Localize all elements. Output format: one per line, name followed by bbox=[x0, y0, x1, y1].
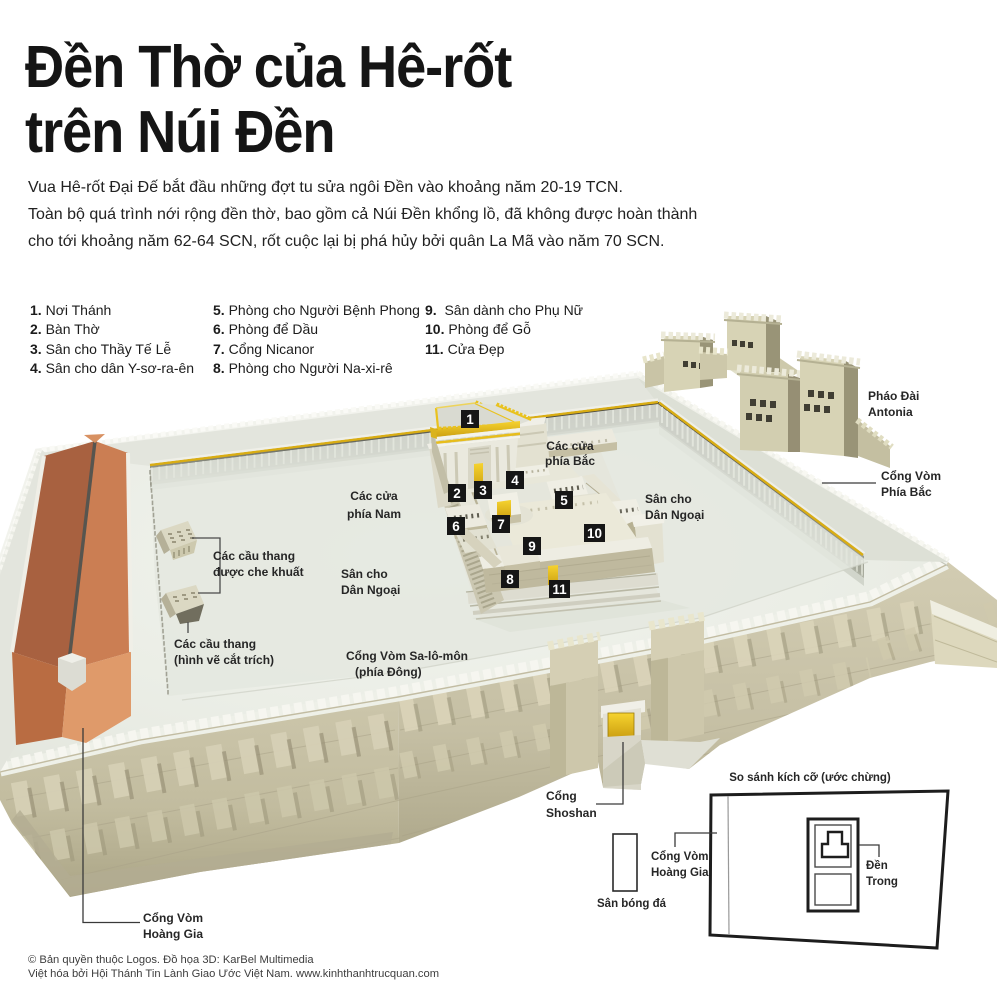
svg-text:phía Nam: phía Nam bbox=[347, 507, 401, 521]
svg-text:9: 9 bbox=[528, 539, 536, 554]
svg-text:Các cửa: Các cửa bbox=[350, 489, 398, 503]
svg-text:2: 2 bbox=[453, 486, 461, 501]
svg-text:8: 8 bbox=[506, 572, 514, 587]
svg-text:Sân cho: Sân cho bbox=[645, 492, 692, 506]
svg-text:1: 1 bbox=[466, 412, 474, 427]
svg-text:Các cầu thang: Các cầu thang bbox=[174, 637, 256, 651]
svg-text:Phía Bắc: Phía Bắc bbox=[881, 484, 932, 499]
svg-text:được che khuất: được che khuất bbox=[213, 565, 304, 579]
svg-text:Hoàng Gia: Hoàng Gia bbox=[143, 927, 203, 941]
svg-text:Sân cho: Sân cho bbox=[341, 567, 388, 581]
svg-text:(phía Đông): (phía Đông) bbox=[355, 665, 422, 679]
svg-text:Sân bóng đá: Sân bóng đá bbox=[597, 898, 667, 910]
svg-text:10: 10 bbox=[587, 526, 602, 541]
svg-text:7: 7 bbox=[497, 517, 505, 532]
svg-text:Các cửa: Các cửa bbox=[546, 439, 594, 453]
svg-text:6: 6 bbox=[452, 519, 460, 534]
svg-text:Pháo Đài: Pháo Đài bbox=[868, 389, 919, 403]
svg-text:Cổng Vòm: Cổng Vòm bbox=[881, 469, 941, 483]
svg-text:Dân Ngoại: Dân Ngoại bbox=[341, 583, 400, 597]
svg-text:3: 3 bbox=[479, 483, 487, 498]
svg-text:Hoàng Gia: Hoàng Gia bbox=[651, 867, 709, 879]
svg-text:Shoshan: Shoshan bbox=[546, 806, 597, 820]
svg-text:Cổng Vòm: Cổng Vòm bbox=[651, 851, 709, 863]
svg-text:Các cầu thang: Các cầu thang bbox=[213, 549, 295, 563]
svg-text:Antonia: Antonia bbox=[868, 405, 913, 419]
svg-text:5: 5 bbox=[560, 493, 568, 508]
svg-text:Đền: Đền bbox=[866, 860, 888, 872]
svg-text:Trong: Trong bbox=[866, 876, 898, 888]
svg-text:Cổng: Cổng bbox=[546, 789, 577, 803]
svg-text:Cổng Vòm Sa-lô-môn: Cổng Vòm Sa-lô-môn bbox=[346, 649, 468, 663]
svg-text:4: 4 bbox=[511, 473, 519, 488]
svg-text:Dân Ngoại: Dân Ngoại bbox=[645, 508, 704, 522]
svg-text:So sánh kích cỡ (ước chừng): So sánh kích cỡ (ước chừng) bbox=[729, 772, 891, 784]
svg-text:11: 11 bbox=[552, 582, 567, 597]
svg-text:Cổng Vòm: Cổng Vòm bbox=[143, 911, 203, 925]
svg-text:phía Bắc: phía Bắc bbox=[545, 453, 595, 468]
svg-text:(hình vẽ cắt trích): (hình vẽ cắt trích) bbox=[174, 652, 274, 667]
